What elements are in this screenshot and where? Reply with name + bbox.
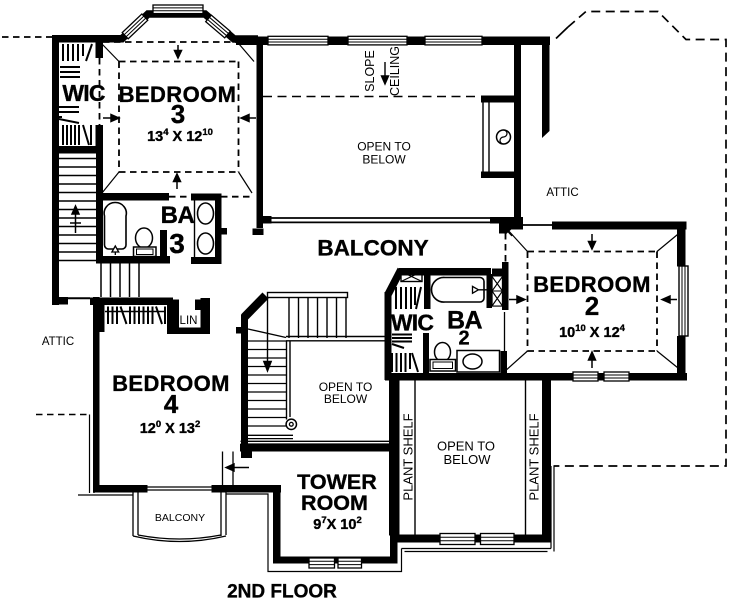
- svg-text:2ND FLOOR: 2ND FLOOR: [227, 582, 337, 600]
- svg-text:BALCONY: BALCONY: [155, 512, 205, 524]
- svg-text:BELOW: BELOW: [444, 452, 492, 467]
- svg-text:OPEN TO: OPEN TO: [357, 140, 411, 154]
- svg-text:PLANT SHELF: PLANT SHELF: [401, 413, 416, 500]
- svg-text:BA: BA: [161, 202, 195, 229]
- svg-text:CEILING: CEILING: [388, 46, 402, 96]
- svg-text:2: 2: [585, 291, 599, 321]
- svg-text:3: 3: [169, 228, 185, 259]
- svg-text:PLANT SHELF: PLANT SHELF: [527, 413, 542, 500]
- svg-text:BALCONY: BALCONY: [317, 236, 428, 261]
- svg-text:1010 X 124: 1010 X 124: [559, 323, 626, 341]
- svg-text:LIN: LIN: [180, 315, 198, 327]
- svg-text:3: 3: [171, 99, 185, 129]
- svg-text:4: 4: [164, 389, 179, 419]
- svg-text:SLOPE: SLOPE: [363, 50, 377, 92]
- svg-text:BELOW: BELOW: [362, 153, 406, 167]
- svg-text:ATTIC: ATTIC: [546, 187, 578, 199]
- svg-text:BELOW: BELOW: [324, 392, 368, 406]
- svg-text:WIC: WIC: [62, 80, 104, 106]
- svg-text:WIC: WIC: [391, 310, 433, 336]
- svg-text:2: 2: [458, 328, 469, 350]
- svg-text:120 X 132: 120 X 132: [140, 419, 201, 437]
- svg-text:ATTIC: ATTIC: [42, 336, 74, 348]
- svg-text:ROOM: ROOM: [301, 491, 368, 515]
- svg-text:97X 102: 97X 102: [313, 515, 362, 533]
